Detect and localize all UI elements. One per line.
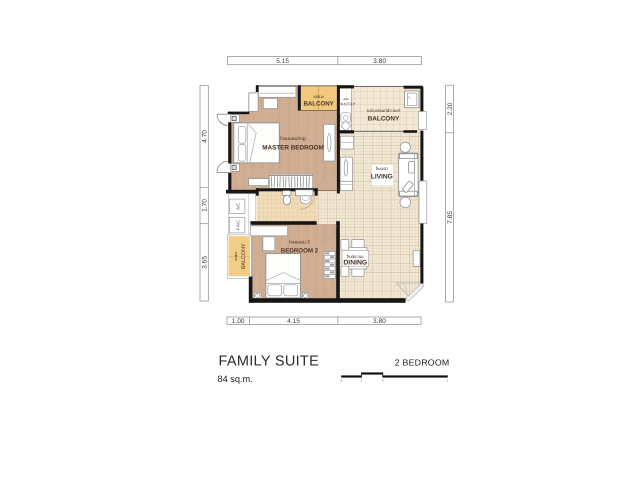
svg-text:3.80: 3.80 xyxy=(373,58,386,65)
svg-text:FAMILY SUITE: FAMILY SUITE xyxy=(219,354,320,370)
svg-text:BALCONY: BALCONY xyxy=(303,101,334,108)
svg-text:4.70: 4.70 xyxy=(201,130,208,143)
svg-text:LIVING: LIVING xyxy=(371,173,393,180)
svg-text:84 sq.m.: 84 sq.m. xyxy=(218,374,253,384)
svg-text:sziiuviaunds:avri: sziiuviaunds:avri xyxy=(367,108,401,113)
svg-text:F A/C: F A/C xyxy=(235,220,240,230)
svg-text:5.15: 5.15 xyxy=(276,58,289,65)
svg-text:BALCONY: BALCONY xyxy=(241,243,247,269)
svg-text:DINING: DINING xyxy=(343,260,367,267)
svg-text:hauuau 2: hauuau 2 xyxy=(289,239,310,245)
svg-text:2 BEDROOM: 2 BEDROOM xyxy=(395,357,450,367)
svg-text:asv: asv xyxy=(343,97,349,101)
svg-text:sziiuv: sziiuv xyxy=(313,94,324,99)
svg-text:3.80: 3.80 xyxy=(373,318,386,325)
svg-text:A/C: A/C xyxy=(235,203,240,210)
svg-text:hauuaulnqj: hauuaulnqj xyxy=(280,136,305,142)
svg-text:sziiuv: sziiuv xyxy=(234,251,238,261)
svg-text:fiuds:mu: fiuds:mu xyxy=(347,254,364,259)
svg-text:3.65: 3.65 xyxy=(201,256,208,269)
svg-text:1.70: 1.70 xyxy=(201,199,208,212)
svg-text:fiuusn: fiuusn xyxy=(376,166,389,171)
svg-text:PANTRY: PANTRY xyxy=(338,102,355,107)
svg-text:4.15: 4.15 xyxy=(287,318,300,325)
svg-text:7.85: 7.85 xyxy=(447,211,454,224)
svg-text:BALCONY: BALCONY xyxy=(368,115,400,122)
svg-text:2.20: 2.20 xyxy=(447,102,454,115)
svg-text:BEDROOM 2: BEDROOM 2 xyxy=(281,248,319,255)
svg-text:MASTER BEDROOM: MASTER BEDROOM xyxy=(262,145,323,152)
svg-text:1.00: 1.00 xyxy=(232,318,245,325)
